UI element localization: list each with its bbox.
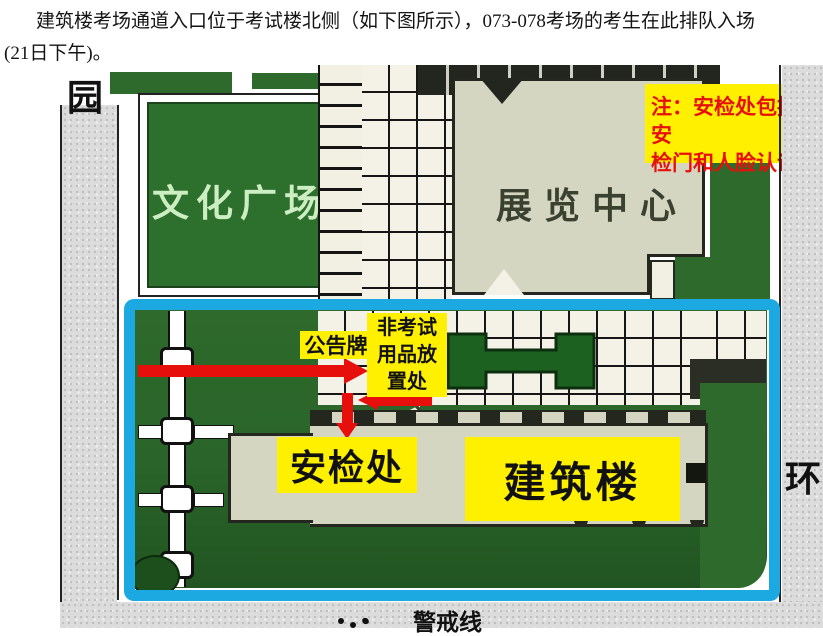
cordon-line-label: 警戒线 [413,603,482,636]
top-lawn-strip-2 [252,73,318,89]
top-lawn-strip-1 [110,72,232,94]
crosswalk-road [318,65,366,299]
highlight-rectangle [124,299,780,601]
campus-map: 园 文化广场 展览中心 注：安检处包括安 检门和人脸认证 环 [60,65,823,628]
white-path-right-of-exhibition [650,260,675,300]
exhibition-center-building-lower [452,254,650,295]
road-mark-dot-2 [350,622,356,628]
left-road [62,105,117,628]
exhibition-top-notch [480,78,524,104]
grid-plaza [362,65,452,299]
road-name-huan: 环 [785,450,821,502]
exhibition-center-label: 展览中心 [478,177,706,229]
culture-plaza-label: 文化广场 [144,173,336,227]
notice-page: 建筑楼考场通道入口位于考试楼北侧（如下图所示），073-078考场的考生在此排队… [0,0,823,636]
road-name-yuan: 园 [67,69,103,121]
lawn-under-step [675,257,710,300]
left-road-inner-line [117,105,119,600]
exhibition-bottom-notch [484,269,524,295]
instruction-line-1: 建筑楼考场通道入口位于考试楼北侧（如下图所示），073-078考场的考生在此排队… [4,6,820,38]
right-road [782,65,823,628]
instruction-paragraph: 建筑楼考场通道入口位于考试楼北侧（如下图所示），073-078考场的考生在此排队… [4,6,820,70]
road-mark-dot-1 [338,618,344,624]
